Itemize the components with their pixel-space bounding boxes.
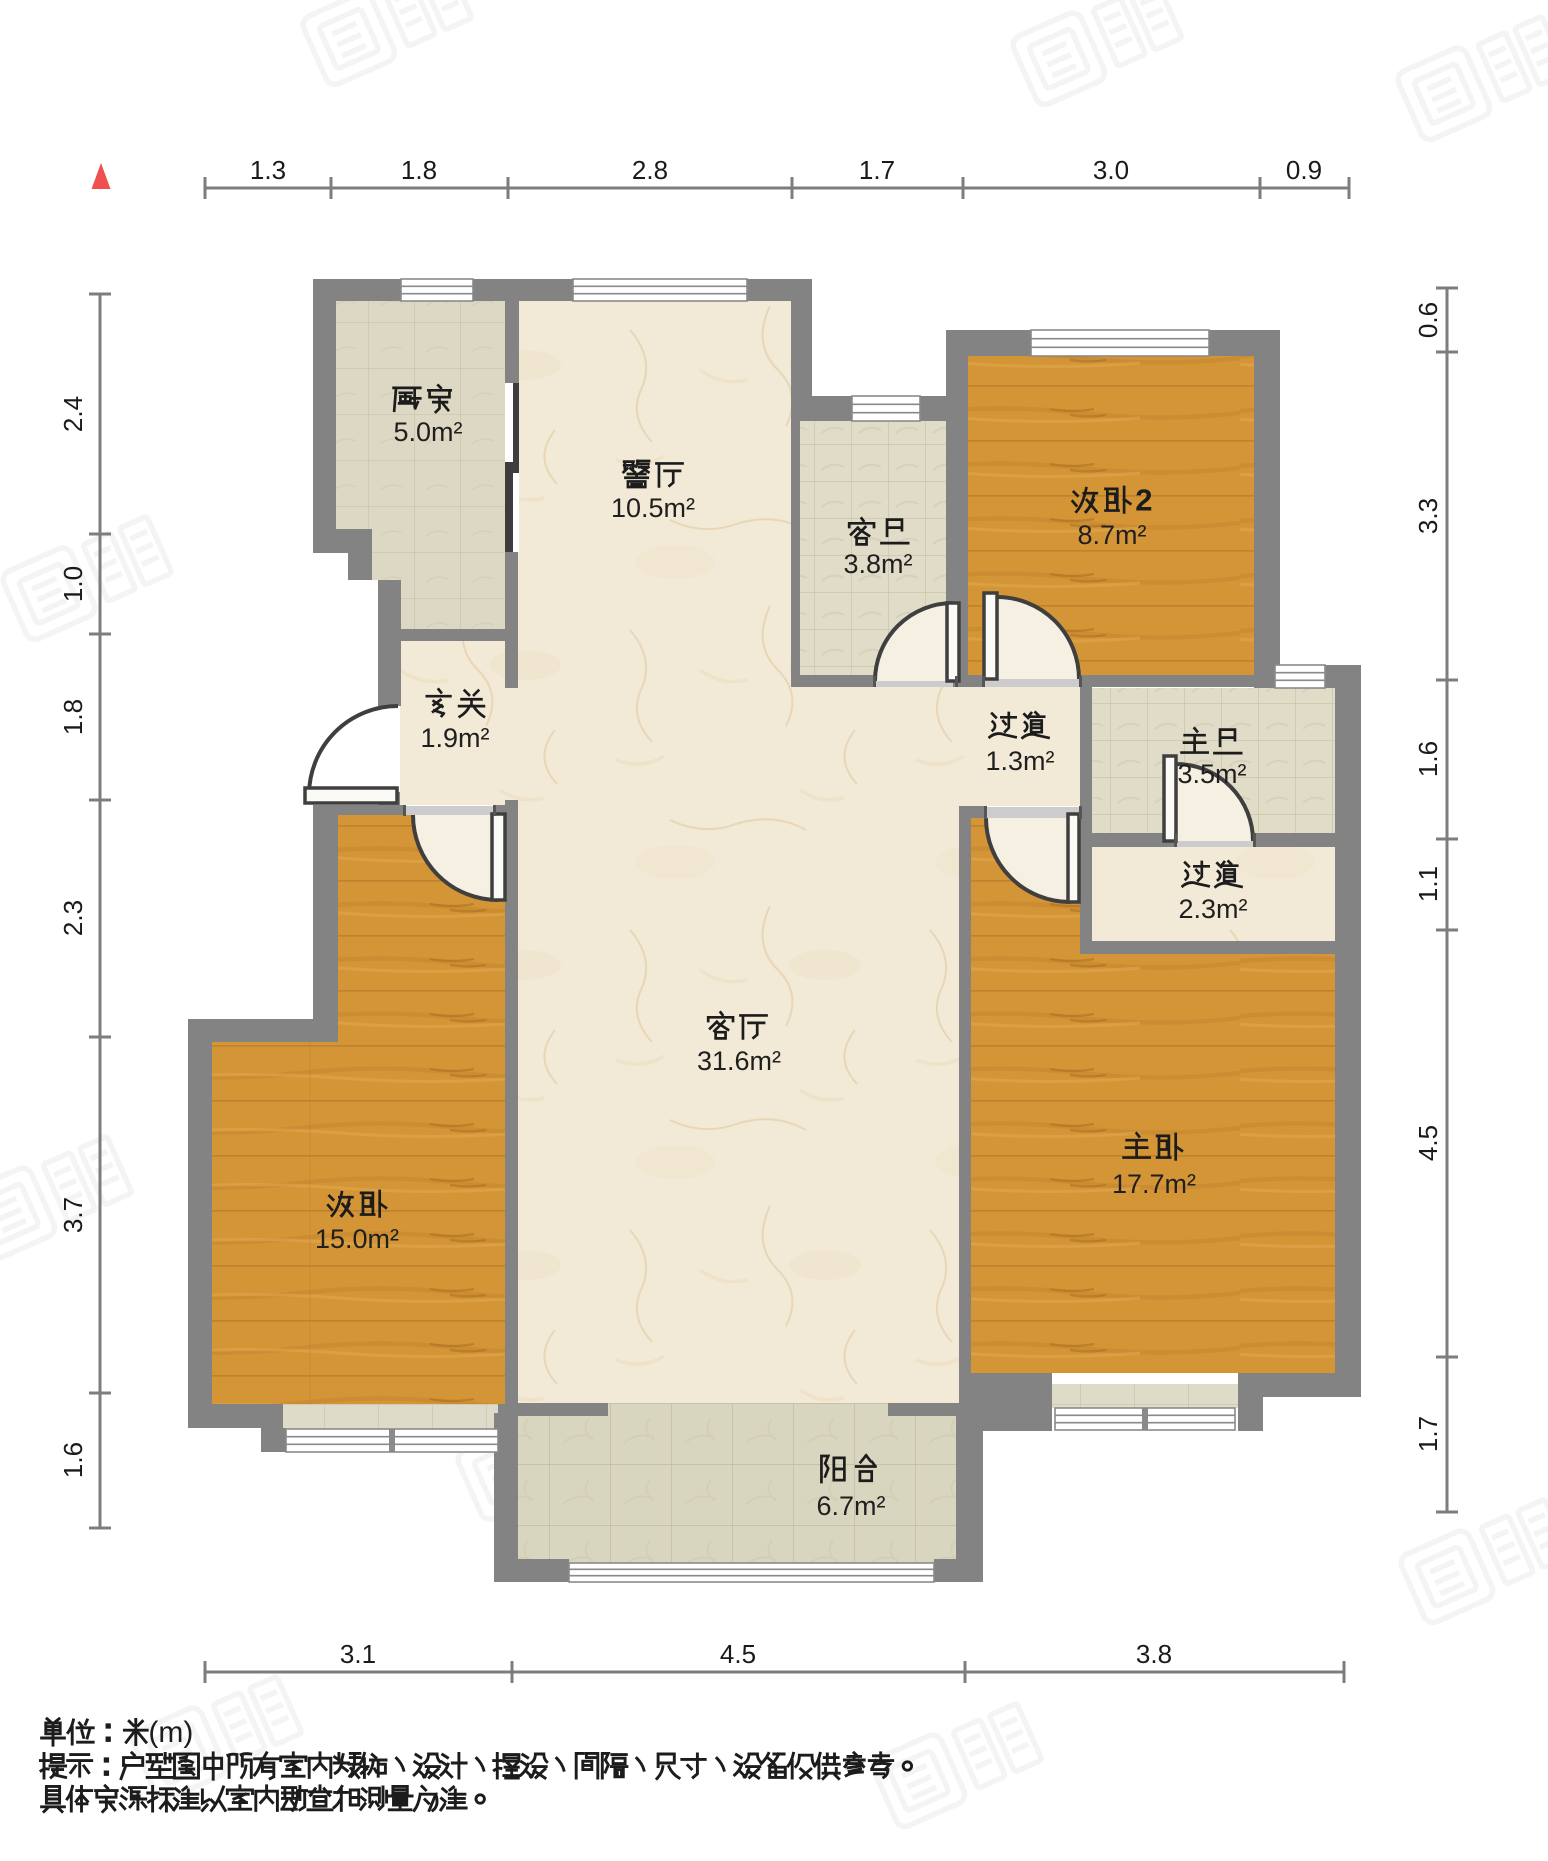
svg-text:10.5m²: 10.5m² xyxy=(611,493,695,523)
svg-text:0.9: 0.9 xyxy=(1286,155,1322,185)
svg-text:1.7: 1.7 xyxy=(859,155,895,185)
svg-text:3.1: 3.1 xyxy=(340,1639,376,1669)
svg-text:4.5: 4.5 xyxy=(720,1639,756,1669)
svg-text:6.7m²: 6.7m² xyxy=(816,1491,885,1521)
svg-text:4.5: 4.5 xyxy=(1413,1125,1443,1161)
svg-text:1.8: 1.8 xyxy=(401,155,437,185)
svg-text:1.8: 1.8 xyxy=(58,699,88,735)
svg-text:2.8: 2.8 xyxy=(632,155,668,185)
svg-text:15.0m²: 15.0m² xyxy=(315,1224,399,1254)
svg-text:8.7m²: 8.7m² xyxy=(1077,520,1146,550)
svg-text:3.5m²: 3.5m² xyxy=(1177,759,1246,789)
svg-text:1.6: 1.6 xyxy=(1413,741,1443,777)
svg-text:3.8m²: 3.8m² xyxy=(843,549,912,579)
svg-text:(m): (m) xyxy=(148,1716,193,1749)
svg-text:1.0: 1.0 xyxy=(58,566,88,602)
svg-text:1.3: 1.3 xyxy=(250,155,286,185)
svg-text:1.6: 1.6 xyxy=(58,1442,88,1478)
svg-text:5.0m²: 5.0m² xyxy=(393,417,462,447)
svg-text:0.6: 0.6 xyxy=(1413,302,1443,338)
svg-text:2.3: 2.3 xyxy=(58,900,88,936)
svg-text:1.9m²: 1.9m² xyxy=(420,723,489,753)
svg-text:3.7: 3.7 xyxy=(58,1197,88,1233)
svg-text:2.4: 2.4 xyxy=(58,396,88,432)
svg-text:31.6m²: 31.6m² xyxy=(697,1046,781,1076)
svg-text:1.1: 1.1 xyxy=(1413,866,1443,902)
svg-text:3.3: 3.3 xyxy=(1413,498,1443,534)
svg-text:3.8: 3.8 xyxy=(1136,1639,1172,1669)
svg-text:17.7m²: 17.7m² xyxy=(1112,1169,1196,1199)
svg-text:1.3m²: 1.3m² xyxy=(985,746,1054,776)
svg-text:1.7: 1.7 xyxy=(1413,1416,1443,1452)
svg-text:2: 2 xyxy=(1135,483,1152,518)
svg-text:3.0: 3.0 xyxy=(1093,155,1129,185)
svg-text:2.3m²: 2.3m² xyxy=(1178,894,1247,924)
